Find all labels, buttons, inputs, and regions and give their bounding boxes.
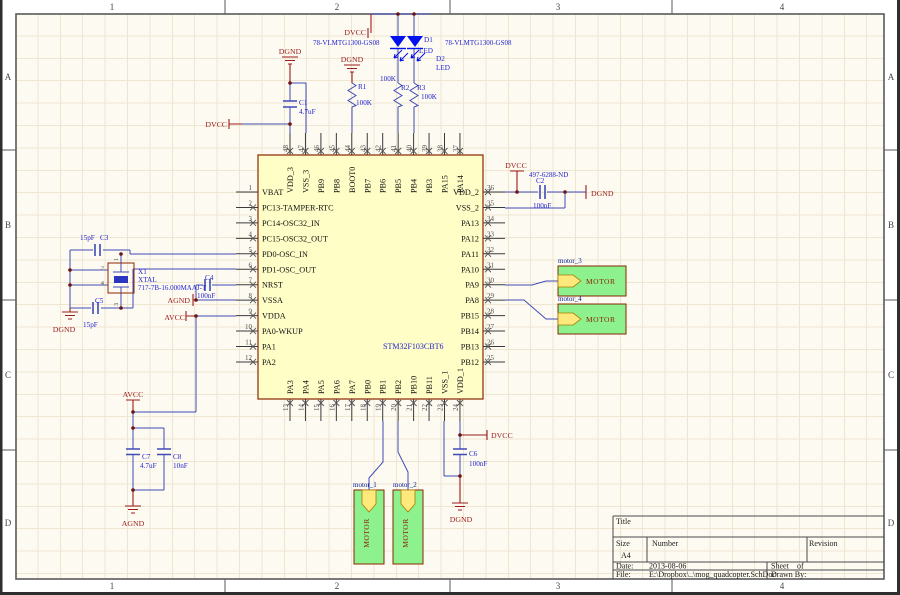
dgnd-label-r1[interactable]: DGND (341, 55, 364, 64)
d2-part[interactable]: 78-VLMTG1300-GS08 (445, 39, 512, 47)
dgnd-label-c6[interactable]: DGND (450, 515, 473, 524)
led-d1[interactable] (390, 36, 406, 47)
pin-name-PB1[interactable]: PB1 (379, 380, 388, 394)
zone-left-B[interactable]: B (5, 220, 11, 230)
pin-name-VSS_1[interactable]: VSS_1 (441, 371, 450, 394)
pin-num-33[interactable]: 33 (487, 230, 495, 238)
drawn-by-label: Drawn By: (771, 570, 806, 579)
pin-name-PB10[interactable]: PB10 (410, 376, 419, 394)
d1-type[interactable]: LED (419, 47, 433, 55)
d2-type[interactable]: LED (436, 64, 450, 72)
pin-num-24[interactable]: 24 (452, 404, 460, 412)
pin-name-PC13-TAMPER-RTC[interactable]: PC13-TAMPER-RTC (262, 203, 334, 212)
file-value: E:\Dropbox\..\mog_quadcopter.SchDoc (649, 570, 776, 579)
pin-num-1[interactable]: 1 (249, 184, 253, 192)
revision-label: Revision (809, 539, 837, 548)
schematic-canvas[interactable]: Title Size A4 Number Revision Date: 2013… (0, 0, 900, 595)
zone-top-3[interactable]: 3 (556, 2, 561, 12)
pin-name-PB11[interactable]: PB11 (425, 376, 434, 394)
c5-value[interactable]: 15pF (83, 321, 98, 329)
pin-num-37[interactable]: 37 (452, 145, 460, 153)
agnd-label-bottom[interactable]: AGND (122, 519, 145, 528)
led-d2[interactable] (407, 36, 423, 47)
c2-part[interactable]: 497-6288-ND (529, 171, 568, 179)
pin-num-22[interactable]: 22 (421, 404, 429, 412)
pin-name-PD0-OSC_IN[interactable]: PD0-OSC_IN (262, 250, 308, 259)
motor-2-port-text: MOTOR (401, 518, 410, 547)
pin-num-11[interactable]: 11 (245, 339, 252, 347)
pin-num-32[interactable]: 32 (487, 246, 495, 254)
pin-num-34[interactable]: 34 (487, 215, 495, 223)
pin-num-23[interactable]: 23 (437, 404, 445, 412)
zone-right-B[interactable]: B (888, 220, 894, 230)
size-value: A4 (621, 551, 631, 560)
pin-name-PC14-OSC32_IN[interactable]: PC14-OSC32_IN (262, 219, 320, 228)
pin-name-PB0[interactable]: PB0 (363, 380, 372, 394)
motor-3[interactable]: motor_3 MOTOR (558, 257, 626, 296)
number-label: Number (652, 539, 679, 548)
crystal-pin-4: 4 (101, 280, 105, 287)
r1-ref[interactable]: R1 (358, 83, 367, 91)
size-label: Size (616, 539, 630, 548)
zone-right-A[interactable]: A (888, 72, 895, 82)
zone-bottom-3[interactable]: 3 (556, 581, 561, 591)
crystal-pin-3: 3 (113, 303, 120, 306)
pin-name-PA8[interactable]: PA8 (465, 296, 479, 305)
pin-name-PA12[interactable]: PA12 (461, 234, 479, 243)
pin-name-VSS_2[interactable]: VSS_2 (456, 203, 479, 212)
pin-name-PA9[interactable]: PA9 (465, 281, 479, 290)
pin-num-47[interactable]: 47 (297, 145, 305, 153)
pin-num-14[interactable]: 14 (297, 404, 305, 412)
r3-ref[interactable]: R3 (417, 84, 426, 92)
crystal-symbol[interactable]: 2 4 1 3 (101, 258, 134, 306)
r2-ref[interactable]: R2 (401, 84, 410, 92)
c3-ref[interactable]: C3 (100, 234, 109, 242)
motor-4-label[interactable]: motor_4 (558, 295, 582, 303)
pin-name-VDD_3[interactable]: VDD_3 (286, 167, 295, 193)
c2-ref[interactable]: C2 (536, 177, 545, 185)
zone-top-4[interactable]: 4 (780, 2, 785, 12)
pin-name-PA4[interactable]: PA4 (301, 380, 310, 394)
d1-part[interactable]: 78-VLMTG1300-GS08 (313, 39, 380, 47)
pin-name-PA11[interactable]: PA11 (461, 250, 479, 259)
motor-3-label[interactable]: motor_3 (558, 257, 582, 265)
pin-num-35[interactable]: 35 (487, 199, 495, 207)
avcc-label-bottom[interactable]: AVCC (123, 390, 144, 399)
mcu-part-label[interactable]: STM32F103CBT6 (383, 342, 443, 351)
pin-num-40[interactable]: 40 (406, 145, 414, 153)
title-label: Title (616, 517, 631, 526)
pin-name-PC15-OSC32_OUT[interactable]: PC15-OSC32_OUT (262, 234, 328, 243)
pin-name-PA6[interactable]: PA6 (332, 380, 341, 394)
d2-ref[interactable]: D2 (436, 55, 445, 63)
pin-name-BOOT0[interactable]: BOOT0 (348, 167, 357, 193)
pin-num-30[interactable]: 30 (487, 277, 495, 285)
pin-name-PB15[interactable]: PB15 (461, 312, 479, 321)
pin-num-39[interactable]: 39 (421, 145, 429, 153)
motor-2-label[interactable]: motor_2 (393, 481, 417, 489)
motor-1-port-text: MOTOR (362, 518, 371, 547)
dvcc-label-c1[interactable]: DVCC (205, 120, 227, 129)
crystal-pin-2: 2 (101, 265, 104, 272)
crystal-pin-1: 1 (113, 258, 120, 261)
zone-right-D[interactable]: D (888, 518, 895, 528)
x1-part[interactable]: 717-7B-16.000MAAJ-T (138, 284, 207, 292)
pin-num-17[interactable]: 17 (344, 404, 352, 412)
pin-num-21[interactable]: 21 (406, 404, 414, 412)
c7-ref[interactable]: C7 (142, 453, 151, 461)
pin-num-6[interactable]: 6 (249, 261, 253, 269)
zone-bottom-2[interactable]: 2 (335, 581, 340, 591)
pin-name-PB12[interactable]: PB12 (461, 358, 479, 367)
dgnd-label-c1[interactable]: DGND (279, 47, 302, 56)
pin-num-2[interactable]: 2 (249, 199, 253, 207)
pin-name-VDD_1[interactable]: VDD_1 (456, 368, 465, 394)
zone-top-2[interactable]: 2 (335, 2, 340, 12)
pin-name-PA0-WKUP[interactable]: PA0-WKUP (262, 327, 303, 336)
zone-top-1[interactable]: 1 (110, 2, 115, 12)
pin-num-3[interactable]: 3 (249, 215, 253, 223)
pin-num-43[interactable]: 43 (359, 145, 367, 153)
zone-bottom-4[interactable]: 4 (780, 581, 785, 591)
x1-type[interactable]: XTAL (138, 276, 157, 284)
c3-value[interactable]: 15pF (80, 234, 95, 242)
pin-num-5[interactable]: 5 (249, 246, 253, 254)
pin-num-8[interactable]: 8 (249, 292, 253, 300)
agnd-label-vssa[interactable]: AGND (167, 296, 190, 305)
pin-num-4[interactable]: 4 (249, 230, 253, 238)
pin-name-PB4[interactable]: PB4 (410, 179, 419, 193)
r3-value[interactable]: 100K (421, 93, 438, 101)
pin-name-PB8[interactable]: PB8 (332, 179, 341, 193)
zone-right-C[interactable]: C (888, 370, 894, 380)
r1-value[interactable]: 100K (356, 99, 373, 107)
pin-num-15[interactable]: 15 (313, 404, 321, 412)
pin-name-PA5[interactable]: PA5 (317, 380, 326, 394)
pin-num-25[interactable]: 25 (487, 354, 495, 362)
c8-value[interactable]: 10nF (173, 462, 188, 470)
pin-name-PA13[interactable]: PA13 (461, 219, 479, 228)
pin-name-PB13[interactable]: PB13 (461, 343, 479, 352)
d1-ref[interactable]: D1 (424, 36, 433, 44)
pin-name-PB9[interactable]: PB9 (317, 179, 326, 193)
pin-num-41[interactable]: 41 (390, 145, 398, 153)
pin-name-VSSA[interactable]: VSSA (262, 296, 283, 305)
pin-num-7[interactable]: 7 (249, 277, 253, 285)
pin-name-PA10[interactable]: PA10 (461, 265, 479, 274)
c5-ref[interactable]: C5 (95, 297, 104, 305)
motor-1[interactable]: motor_1 MOTOR (353, 481, 384, 564)
pin-num-10[interactable]: 10 (245, 323, 253, 331)
pin-name-PB7[interactable]: PB7 (363, 179, 372, 193)
pin-num-42[interactable]: 42 (375, 145, 383, 153)
pin-num-27[interactable]: 27 (487, 323, 495, 331)
pin-name-PA15[interactable]: PA15 (441, 175, 450, 193)
pin-name-PA1[interactable]: PA1 (262, 343, 276, 352)
pin-num-13[interactable]: 13 (282, 404, 290, 412)
pin-num-12[interactable]: 12 (245, 354, 253, 362)
dgnd-label-c2[interactable]: DGND (591, 189, 614, 198)
motor-4[interactable]: motor_4 MOTOR (558, 295, 626, 334)
pin-num-20[interactable]: 20 (390, 404, 398, 412)
motor-4-port-text: MOTOR (586, 315, 615, 324)
motor-1-label[interactable]: motor_1 (353, 481, 377, 489)
zone-left-A[interactable]: A (5, 72, 12, 82)
c1-value[interactable]: 4.7uF (299, 108, 316, 116)
pin-name-NRST[interactable]: NRST (262, 281, 283, 290)
motor-2[interactable]: motor_2 MOTOR (393, 481, 423, 564)
pin-num-28[interactable]: 28 (487, 308, 495, 316)
dvcc-label-c6[interactable]: DVCC (491, 431, 513, 440)
pin-num-38[interactable]: 38 (437, 145, 445, 153)
dgnd-label-xtal[interactable]: DGND (53, 325, 76, 334)
pin-num-48[interactable]: 48 (282, 145, 290, 153)
motor-3-port-text: MOTOR (586, 277, 615, 286)
pin-num-26[interactable]: 26 (487, 339, 495, 347)
pin-num-36[interactable]: 36 (487, 184, 495, 192)
x1-ref[interactable]: X1 (138, 268, 147, 276)
pin-name-PA7[interactable]: PA7 (348, 380, 357, 394)
pin-name-PB6[interactable]: PB6 (379, 179, 388, 193)
c4-ref[interactable]: C4 (205, 274, 214, 282)
zone-left-C[interactable]: C (5, 370, 11, 380)
pin-name-PD1-OSC_OUT[interactable]: PD1-OSC_OUT (262, 265, 316, 274)
pin-name-PB5[interactable]: PB5 (394, 179, 403, 193)
pin-name-PA14[interactable]: PA14 (456, 175, 465, 193)
pin-num-19[interactable]: 19 (375, 404, 383, 412)
file-label: File: (616, 570, 631, 579)
pin-num-9[interactable]: 9 (249, 308, 253, 316)
pin-name-VBAT[interactable]: VBAT (262, 188, 283, 197)
pin-num-18[interactable]: 18 (359, 404, 367, 412)
pin-name-PA3[interactable]: PA3 (286, 380, 295, 394)
pin-name-PB3[interactable]: PB3 (425, 179, 434, 193)
avcc-label-vdda[interactable]: AVCC (164, 313, 185, 322)
pin-num-46[interactable]: 46 (313, 145, 321, 153)
dvcc-label-top[interactable]: DVCC (344, 28, 366, 37)
c6-ref[interactable]: C6 (469, 450, 478, 458)
pin-num-16[interactable]: 16 (328, 404, 336, 412)
c7-value[interactable]: 4.7uF (140, 462, 157, 470)
pin-num-44[interactable]: 44 (344, 145, 352, 153)
pin-name-PB14[interactable]: PB14 (461, 327, 479, 336)
title-block: Title Size A4 Number Revision Date: 2013… (613, 516, 884, 579)
dvcc-label-c2[interactable]: DVCC (505, 161, 527, 170)
c1-ref[interactable]: C1 (299, 99, 308, 107)
pin-num-29[interactable]: 29 (487, 292, 495, 300)
pin-num-31[interactable]: 31 (487, 261, 495, 269)
c4-value[interactable]: 100nF (197, 292, 215, 300)
r2-value[interactable]: 100K (380, 75, 397, 83)
c2-value[interactable]: 100nF (533, 202, 551, 210)
c8-ref[interactable]: C8 (173, 453, 182, 461)
pin-name-PB2[interactable]: PB2 (394, 380, 403, 394)
pin-name-VSS_3[interactable]: VSS_3 (301, 170, 310, 193)
pin-name-PA2[interactable]: PA2 (262, 358, 276, 367)
zone-left-D[interactable]: D (5, 518, 12, 528)
zone-bottom-1[interactable]: 1 (110, 581, 115, 591)
c6-value[interactable]: 100nF (469, 460, 487, 468)
pin-num-45[interactable]: 45 (328, 145, 336, 153)
pin-name-VDDA[interactable]: VDDA (262, 312, 286, 321)
